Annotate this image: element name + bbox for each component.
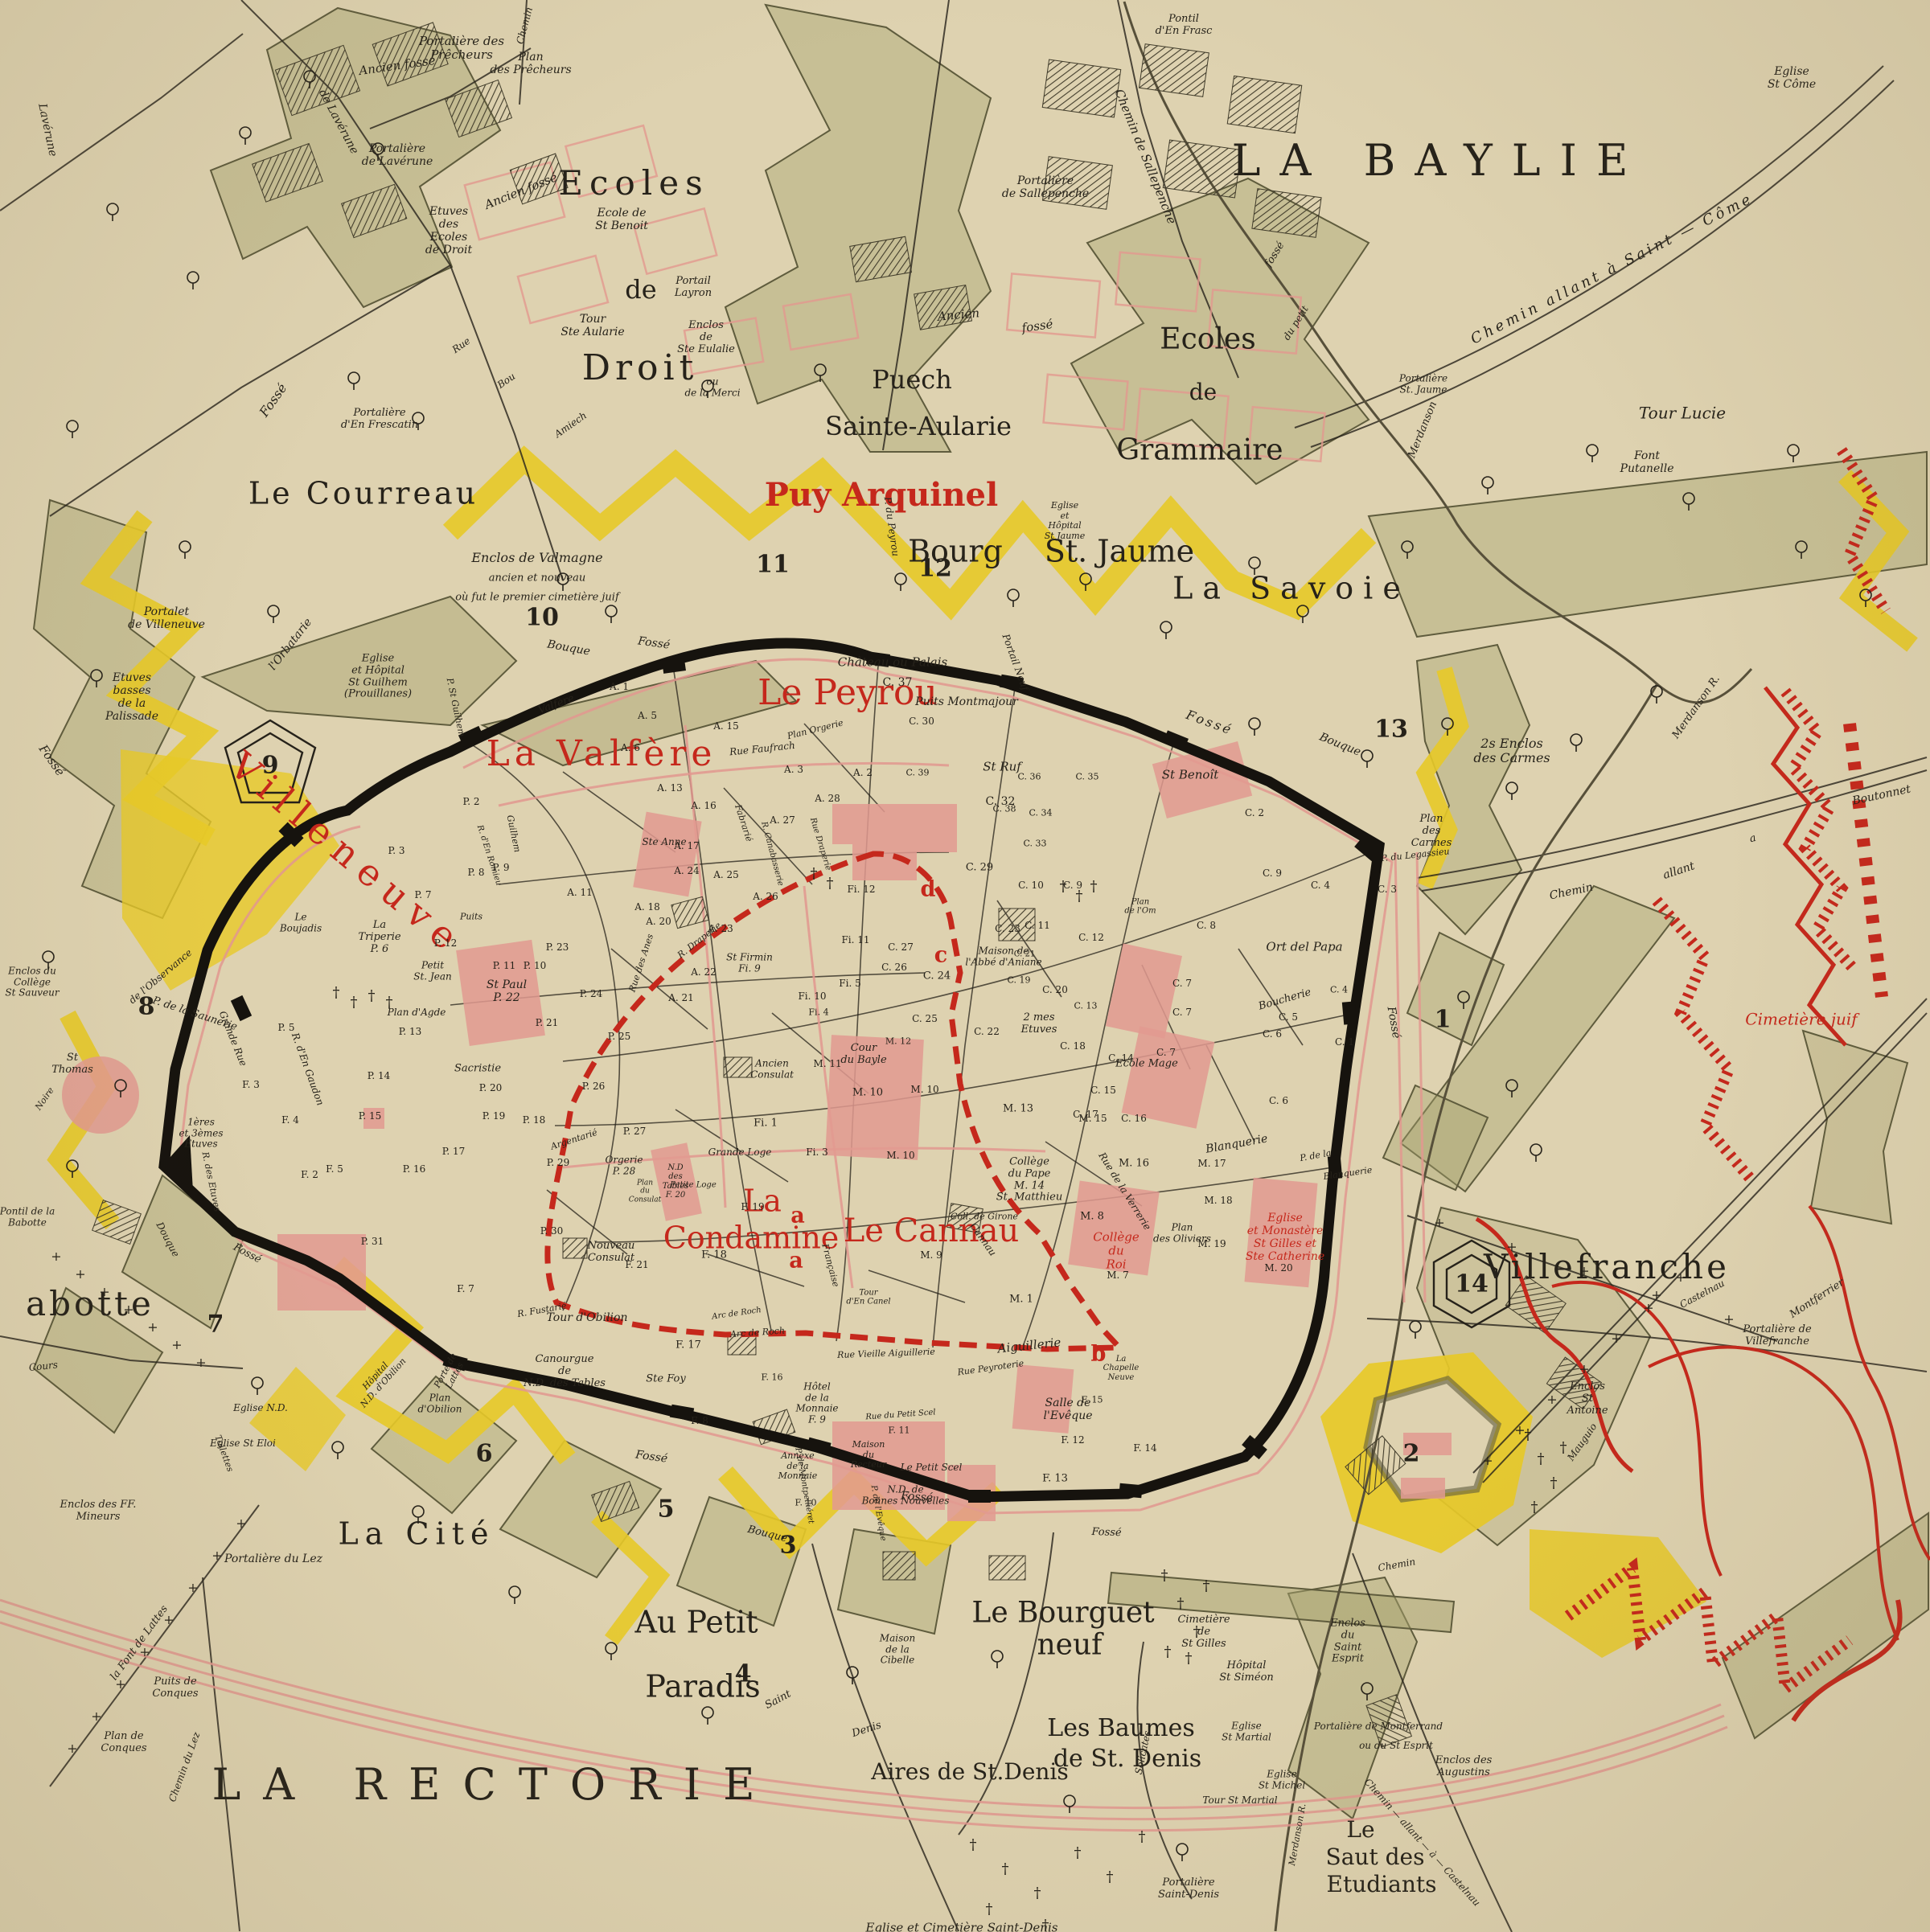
map-label: P. 19: [482, 1111, 506, 1122]
map-label: M. 13: [1003, 1104, 1033, 1116]
map-label: St Benoît: [1162, 768, 1219, 781]
map-label: F. 2: [301, 1170, 318, 1181]
map-label: A. 27: [770, 815, 795, 827]
map-label: P. 11: [493, 961, 516, 972]
map-label: Fossé: [36, 743, 68, 779]
map-label: C. 6: [1263, 1029, 1282, 1040]
map-label: Montferrier: [1788, 1278, 1846, 1322]
map-label: Portalière des Prêcheurs: [419, 35, 504, 62]
map-label: neuf: [1037, 1628, 1103, 1661]
map-label: St Paul P. 22: [487, 979, 527, 1005]
map-label: Sainte-Aularie: [825, 412, 1012, 441]
map-label: P. de la Saunerie: [151, 995, 239, 1034]
map-label: Rue Peyroterie: [957, 1359, 1025, 1378]
map-label: Fi. 5: [839, 978, 860, 990]
map-label: Canourgue de N.D. des Tables: [524, 1354, 606, 1389]
map-label: Rue Faufrach: [729, 740, 796, 758]
map-label: Chemin du Lez: [167, 1731, 203, 1804]
map-label: Rue Draperie: [808, 817, 833, 872]
map-label: Le Petit Scel: [901, 1462, 963, 1474]
map-label: La: [743, 1183, 782, 1218]
map-label: C. 6: [1269, 1096, 1288, 1107]
map-label: Hôpital St Siméon: [1219, 1660, 1274, 1684]
map-label: Fossé: [1384, 1006, 1402, 1040]
map-label: C. 34: [1029, 809, 1052, 819]
map-label: Enclos de Ste Eulalie: [677, 320, 735, 355]
map-label: Plan d'Obilion: [418, 1393, 462, 1414]
map-label: Puits de Conques: [152, 1676, 198, 1700]
boundary-letter: d: [921, 877, 936, 902]
map-label: A. 23: [708, 924, 733, 935]
map-label: Portalière de Sallepenche: [1002, 175, 1089, 201]
map-label: Fi. 10: [798, 991, 826, 1003]
map-label: Eglise St Martial: [1222, 1721, 1271, 1742]
map-label: Bouque: [746, 1524, 788, 1546]
map-label: Amiech: [552, 410, 589, 440]
map-label: Condamine: [663, 1220, 840, 1255]
map-label: F. 18: [701, 1250, 727, 1262]
map-label: C. 18: [1060, 1041, 1086, 1052]
map-label: Rue: [450, 336, 472, 356]
map-label: Plan de l'Om: [1124, 898, 1156, 917]
map-label: de Lavérune: [315, 88, 360, 157]
map-label: C. 14: [1108, 1053, 1134, 1064]
map-label: A. 2: [853, 768, 873, 779]
map-label: 2s Enclos des Carmes: [1473, 736, 1550, 765]
map-label: Chemin: [1549, 882, 1595, 904]
historic-city-map: ††††††††††††††††††††††††††††++++++++++++…: [0, 0, 1930, 1932]
map-label: F. 3: [242, 1080, 260, 1091]
map-label: Salle de l'Evêque: [1043, 1397, 1092, 1423]
map-label: Toilettes: [212, 1434, 235, 1473]
map-label: C. 7: [1172, 1007, 1192, 1019]
map-label: Bouque: [546, 638, 591, 658]
map-label: C. 39: [905, 769, 929, 779]
map-label: LA BAYLIE: [1232, 136, 1648, 186]
map-label: C. 4: [1330, 986, 1348, 996]
map-label: M. 11: [813, 1059, 841, 1070]
sector-number: 6: [476, 1440, 493, 1468]
map-label: P. de l'Evêque: [868, 1484, 887, 1541]
map-label: M. 1: [1009, 1294, 1033, 1306]
map-label: Fossé: [231, 1242, 263, 1267]
map-label: St Thomas: [51, 1052, 93, 1077]
map-label: A. 3: [784, 765, 803, 776]
map-label: Merdanson R.: [1670, 674, 1723, 741]
map-label: C. 23: [995, 924, 1020, 935]
map-label: R. d'En Romieu: [474, 824, 503, 887]
map-label: Puy Arquinel: [765, 477, 998, 514]
map-label: Chemin: [1378, 1557, 1417, 1574]
map-label: P. 18: [523, 1115, 546, 1126]
map-label: Puits: [460, 913, 482, 923]
map-label: M. 17: [1197, 1159, 1226, 1170]
map-label: Ecoles: [1160, 322, 1255, 355]
map-label: A. 22: [691, 967, 717, 978]
map-label: Arc de Roch: [730, 1326, 786, 1339]
map-label: Chemin: [515, 6, 535, 46]
map-label: Petit St. Jean: [413, 960, 451, 982]
map-label: Puits Montmajour: [915, 696, 1018, 709]
map-label: N.D des Tables F. 20: [663, 1163, 689, 1200]
map-label: M. 15: [1078, 1114, 1107, 1125]
map-label: Solicates: [1134, 1730, 1154, 1776]
sector-number: 10: [525, 604, 559, 632]
map-label: A. 25: [713, 870, 739, 881]
map-label: 1ères et 3èmes Etuves: [179, 1117, 223, 1150]
map-label: Le Cannau: [844, 1213, 1020, 1250]
boundary-letter: c: [934, 943, 947, 968]
map-label: P. 10: [524, 961, 547, 972]
map-label: Fi. 3: [806, 1147, 827, 1159]
map-label: Plan des Carmes: [1411, 814, 1452, 849]
map-label: Chemin allant à Saint — Côme: [1468, 191, 1756, 348]
map-label: Villefranche: [1484, 1248, 1730, 1286]
map-label: C. 22: [974, 1027, 1000, 1038]
map-label: Annexe de la Monnaie: [778, 1451, 818, 1482]
map-label: P. 25: [608, 1032, 631, 1043]
map-label: Portalière d'En Frescatin: [341, 408, 418, 432]
map-label: Blanquerie: [1323, 1166, 1373, 1183]
map-label: F. 4: [281, 1115, 299, 1126]
map-label: Plan du Consulat: [629, 1179, 661, 1204]
map-label: M. 20: [1264, 1263, 1292, 1274]
map-label: de l'Observance: [127, 947, 195, 1006]
map-label: P. 3: [388, 846, 405, 857]
map-label: Saint: [763, 1688, 793, 1712]
map-label: M. 10: [852, 1088, 883, 1100]
map-label: abotte: [26, 1285, 154, 1323]
map-label: La Cité: [339, 1516, 495, 1551]
map-label: P. 20: [479, 1083, 503, 1094]
map-label: M. 10: [886, 1151, 914, 1162]
map-label: Enclos du Saint Esprit: [1330, 1618, 1365, 1665]
map-label: la Font de Lattes: [109, 1604, 170, 1684]
map-label: Le Bourguet: [971, 1596, 1154, 1629]
map-label: P. 14: [368, 1071, 391, 1082]
map-label: Nouveau Consulat: [588, 1241, 635, 1265]
map-label: de St. Denis: [1053, 1745, 1201, 1773]
map-label: Maison de l'Abbé d'Aniane: [965, 945, 1041, 967]
map-label: Sacristie: [454, 1064, 501, 1076]
map-label: Chemin de Sallepenche: [1111, 88, 1178, 227]
map-label: Bouque: [1317, 731, 1362, 759]
map-label: Mauguio: [1566, 1421, 1599, 1463]
map-label: Collège du Pape M. 14 St. Matthieu: [996, 1156, 1063, 1204]
map-label: Maison du Recteur: [851, 1440, 886, 1471]
map-label: C. 30: [909, 716, 934, 728]
map-label: Pontil de la Babotte: [0, 1206, 55, 1228]
map-label: P. St Guilhem: [444, 677, 466, 738]
map-label: R. Draperie: [676, 921, 724, 961]
map-label: A. 15: [713, 721, 739, 732]
map-label: Droit: [582, 348, 699, 388]
map-label: Paradis: [645, 1669, 760, 1704]
sector-number: 11: [756, 551, 790, 579]
map-label: 2 mes Etuves: [1021, 1012, 1057, 1036]
map-label: Grande Rue: [216, 1010, 248, 1069]
map-label: Fi. 4: [808, 1008, 828, 1019]
map-label: M. 19: [1197, 1239, 1226, 1250]
map-label: P. 16: [403, 1164, 426, 1175]
map-label: Française: [819, 1243, 840, 1288]
map-label: P. 27: [623, 1126, 647, 1138]
map-label: M. 10: [910, 1085, 938, 1096]
map-label: Rue du Petit Scel: [865, 1408, 936, 1421]
map-label: Cimetière de St Gilles: [1177, 1614, 1230, 1650]
boundary-letter: a: [789, 1249, 803, 1274]
sector-number: 9: [262, 752, 279, 780]
map-label: Etudiants: [1327, 1872, 1437, 1897]
map-label: C. 25: [912, 1014, 938, 1025]
map-label: F. 11: [889, 1426, 910, 1437]
map-label: Bou: [495, 371, 517, 392]
map-label: P. du Peyrou: [881, 496, 901, 557]
map-label: Fossé: [257, 381, 289, 420]
map-label: C. 13: [1074, 1002, 1097, 1012]
map-label: Guilhem: [504, 814, 522, 854]
map-label: M. 8: [1080, 1212, 1104, 1224]
map-label: de: [1189, 379, 1218, 405]
map-label: Le: [1346, 1817, 1374, 1843]
map-label: P. de Montpelliéret: [793, 1447, 815, 1524]
map-label: Portail Layron: [675, 276, 712, 300]
map-label: Bourg: [908, 534, 1003, 568]
map-label: Boutonnet: [1851, 784, 1912, 809]
map-label: Villeneuve: [222, 744, 473, 964]
map-label: Hôpital N.D. d'Obilion: [351, 1350, 409, 1410]
map-label: C. 2: [1245, 808, 1264, 819]
map-label: C. 10: [1018, 880, 1044, 892]
map-label: Arc de Roch: [712, 1306, 762, 1322]
map-label: Ancien fossé: [482, 170, 559, 212]
map-label: F. 12: [1061, 1435, 1084, 1446]
map-label: C. 38: [992, 805, 1016, 815]
map-label: C. 3: [1378, 884, 1397, 896]
boundary-letter: a: [790, 1204, 805, 1229]
sector-number: 7: [207, 1311, 224, 1339]
map-label: Cimetière juif: [1745, 1011, 1857, 1029]
map-label: C. 4: [1311, 880, 1330, 892]
map-label: A. 24: [674, 866, 700, 877]
map-label: R. Canabasserie: [759, 821, 785, 887]
map-label: C. 1: [1335, 1037, 1354, 1048]
map-label: Etuves basses de la Palissade: [105, 672, 158, 724]
map-label: Saut des: [1326, 1844, 1425, 1870]
map-label: Grande Loge: [708, 1147, 772, 1159]
map-label: Boucherie: [1258, 987, 1313, 1014]
sector-number: 8: [138, 993, 155, 1021]
map-label: F. 14: [1133, 1443, 1156, 1454]
map-label: Eglise et Monastère St Gilles et Ste Cat…: [1246, 1212, 1324, 1264]
map-label: R. d'En Gaudon: [289, 1032, 325, 1107]
map-label: M. 9: [920, 1250, 942, 1261]
map-label: allant: [1661, 860, 1696, 883]
map-label: Aiguillerie: [997, 1335, 1061, 1356]
map-label: M. 16: [1119, 1159, 1149, 1171]
map-label: Le Boujadis: [280, 912, 322, 933]
map-label: C. 36: [1017, 773, 1041, 783]
map-label: C. 5: [1279, 1012, 1298, 1023]
map-label: Eglise N.D.: [233, 1403, 288, 1414]
map-label: F. 16: [762, 1373, 783, 1384]
map-label: Portalière de Villefranche: [1743, 1324, 1811, 1348]
sector-number: 3: [780, 1532, 797, 1560]
map-label: Eglise St Côme: [1768, 66, 1816, 92]
sector-number: 2: [1403, 1440, 1420, 1468]
map-label: Ancien Consulat: [750, 1058, 794, 1080]
map-label: Fi. 12: [847, 884, 875, 896]
map-label: La Triperie P. 6: [358, 920, 400, 955]
map-label: Fossé: [1184, 708, 1234, 738]
map-label: Enclos des Augustins: [1435, 1755, 1493, 1779]
map-label: Le Courreau: [248, 476, 478, 511]
map-label: Plan des Oliviers: [1153, 1222, 1211, 1244]
map-label: fossé: [1021, 318, 1054, 335]
map-label: du petit: [1282, 304, 1312, 343]
map-label: M. 18: [1204, 1196, 1232, 1207]
map-label: Plan des Prêcheurs: [490, 51, 571, 77]
map-label: F. 8: [691, 1416, 708, 1427]
map-label: P. 31: [361, 1237, 384, 1248]
map-label: St Ruf: [983, 760, 1021, 773]
map-label: C. 19: [1007, 976, 1030, 987]
map-label: Blanquerie: [1205, 1133, 1268, 1156]
map-label: P. 29: [547, 1158, 570, 1169]
map-label: Cour du Bayle: [840, 1043, 886, 1067]
map-label: C. 12: [1078, 933, 1104, 944]
map-label: P. 23: [546, 942, 569, 954]
map-label: Merdanson: [1406, 400, 1440, 461]
map-label: A. 28: [815, 794, 840, 805]
map-label: P. 24: [580, 989, 603, 1000]
map-label: A. 26: [753, 892, 778, 903]
map-label: Cours: [28, 1360, 58, 1373]
map-label: Coll. de Girone: [951, 1212, 1018, 1223]
map-label: Fi. 1: [754, 1118, 778, 1130]
map-label: C. 9: [1263, 868, 1282, 880]
map-label: M. 7: [1107, 1270, 1129, 1282]
map-label: Chemin — allant — à — Castelnau: [1361, 1777, 1482, 1909]
map-label: ou du St Esprit: [1359, 1741, 1433, 1752]
map-label: Noire: [34, 1085, 56, 1112]
map-label: A. 20: [646, 917, 671, 928]
map-label: où fut le premier cimetière juif: [455, 593, 619, 605]
map-label: P. de la: [1300, 1148, 1333, 1163]
map-label: A. 21: [668, 993, 694, 1004]
sector-number: 5: [658, 1495, 675, 1524]
map-label: La Valfère: [487, 734, 717, 774]
map-label: Porte de Lattes: [433, 1352, 468, 1394]
map-label: A. 6: [621, 743, 640, 754]
map-label: A. 5: [638, 711, 657, 722]
map-label: P. 21: [536, 1018, 559, 1029]
map-label: Au Petit: [634, 1605, 758, 1639]
map-label: Ste Foy: [646, 1374, 685, 1386]
map-label: A. 11: [567, 888, 593, 899]
map-label: Tour d'Obilion: [547, 1312, 628, 1325]
map-label: fossé: [1263, 240, 1287, 269]
map-label: C. 26: [881, 962, 907, 974]
map-label: C. 24: [923, 971, 951, 983]
map-label: ou de la Merci: [684, 376, 740, 398]
map-label: F. 10: [795, 1499, 817, 1509]
map-label: P. 12: [434, 938, 458, 950]
map-label: Fi. 11: [841, 935, 869, 946]
map-label: Eglise St Eloi: [210, 1438, 276, 1450]
map-label: P. 7: [415, 890, 432, 901]
map-label: N.D. de Bonnes Nouvelles: [862, 1484, 950, 1506]
map-label: P. du Legassieu: [1381, 847, 1450, 863]
map-label: C. 27: [888, 942, 914, 954]
map-label: Ancien fossé: [358, 54, 436, 78]
map-label: Portail Neuf: [1000, 633, 1030, 692]
map-label: R. Fustarié: [516, 1301, 567, 1319]
map-label: Fossé: [637, 635, 671, 652]
map-label: F. 7: [457, 1284, 474, 1295]
map-label: Font Putanelle: [1620, 450, 1674, 476]
map-label: Pontil d'En Frasc: [1156, 14, 1213, 38]
map-label: Tour Lucie: [1639, 404, 1726, 423]
map-label: Lavérune: [35, 103, 59, 158]
map-label: C. 7: [1156, 1048, 1176, 1059]
map-label: a: [1748, 833, 1757, 846]
map-label: St. Jaume: [1045, 534, 1194, 568]
map-label: de: [625, 275, 656, 304]
map-label: Castelnau: [1678, 1278, 1727, 1311]
map-label: Orgerie P. 28: [605, 1155, 643, 1176]
map-label: Enclos du Collège St Sauveur: [5, 966, 59, 999]
map-label: A. 1: [610, 682, 629, 693]
map-label: Ancien: [937, 306, 980, 324]
map-label: Enclos de Valmagne: [471, 551, 602, 565]
map-label: F. 17: [675, 1340, 701, 1352]
map-label: C. 29: [966, 863, 993, 875]
map-label: Cannau: [967, 1221, 998, 1258]
map-label: Enclos St Antoine: [1567, 1381, 1608, 1417]
map-label: Eglise St Michel: [1259, 1769, 1305, 1790]
map-label: C. 7: [1172, 978, 1192, 990]
map-label: C. 15: [1090, 1085, 1116, 1097]
map-label: Rue Vieille Aiguillerie: [837, 1347, 935, 1361]
map-label: F. 19: [741, 1202, 764, 1213]
map-label: A. 17: [674, 841, 700, 852]
map-label: Plan d'Agde: [388, 1007, 446, 1019]
map-label: Fossé: [634, 1449, 668, 1466]
map-label: P. 2: [463, 797, 480, 808]
map-label: Eglise et Hôpital St Jaume: [1045, 501, 1085, 541]
map-label: Les Baumes: [1047, 1715, 1194, 1742]
map-label: Ecoles: [558, 164, 708, 203]
map-label: C. 9: [1063, 880, 1082, 892]
boundary-letter: b: [1091, 1342, 1107, 1367]
sector-number: 1: [1435, 1006, 1452, 1034]
map-label: Portalière Saint-Denis: [1158, 1877, 1219, 1901]
map-label: Maison de la Cibelle: [880, 1633, 915, 1666]
map-label: C. 8: [1197, 921, 1216, 932]
map-label: Douque: [154, 1220, 181, 1259]
map-label: A. 16: [691, 801, 717, 812]
map-label: Fabrarié: [733, 803, 754, 843]
map-label: P. 8: [468, 868, 485, 879]
map-label: C. 16: [1121, 1114, 1147, 1125]
map-label: F. 15: [1082, 1396, 1103, 1406]
map-label: Fossé: [1091, 1527, 1122, 1540]
map-label: Tour d'En Canel: [846, 1289, 890, 1307]
map-label: Ort del Papa: [1266, 940, 1342, 954]
map-label: Collège du Roi: [1093, 1230, 1139, 1271]
map-label: Ste Anne: [642, 837, 686, 848]
